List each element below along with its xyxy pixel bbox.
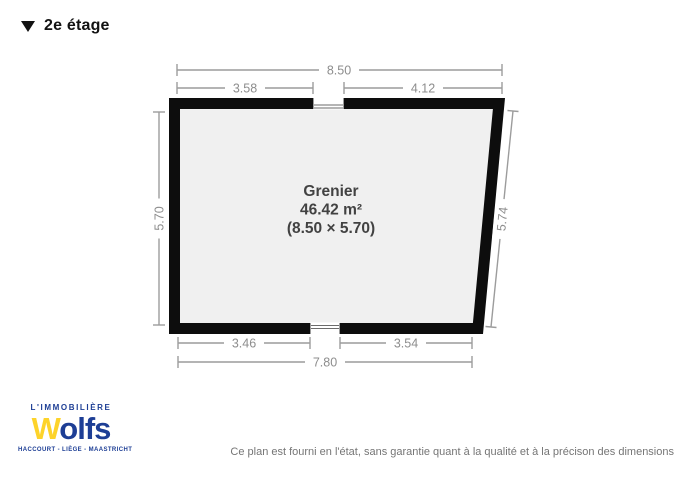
floorplan-drawing: 8.50 3.58 4.12 5.70 5.74 (0, 0, 679, 400)
agency-logo-initial: W (32, 411, 60, 446)
dimension-width-total: 8.50 (177, 62, 502, 78)
agency-logo: L'IMMOBILIÈRE Wolfs HACCOURT - LIÈGE - M… (18, 404, 124, 453)
dimension-value: 7.80 (313, 356, 337, 370)
agency-logo-cities: HACCOURT - LIÈGE - MAASTRICHT (18, 447, 124, 453)
dimension-value: 3.54 (394, 337, 418, 351)
disclaimer-text: Ce plan est fourni en l'état, sans garan… (230, 446, 674, 458)
dimension-bottom-left: 3.46 (178, 335, 310, 351)
agency-logo-brand: Wolfs (18, 413, 124, 444)
agency-logo-rest: olfs (59, 411, 110, 446)
dimension-width-right: 4.12 (344, 80, 502, 96)
window-bottom (310, 323, 340, 335)
dimension-value: 4.12 (411, 82, 435, 96)
room-area: 46.42 m² (300, 202, 362, 219)
dimension-tick (508, 111, 519, 112)
room-dimensions: (8.50 × 5.70) (287, 220, 375, 237)
dimension-value: 3.46 (232, 337, 256, 351)
dimension-tick (486, 327, 497, 328)
dimension-value: 8.50 (327, 64, 351, 78)
dimension-width-left: 3.58 (177, 80, 313, 96)
dimension-bottom-total: 7.80 (178, 354, 472, 370)
dimension-bottom-right: 3.54 (340, 335, 472, 351)
dimension-value: 5.70 (153, 206, 167, 230)
dimension-value: 3.58 (233, 82, 257, 96)
dimension-value: 5.74 (494, 206, 510, 232)
room-name: Grenier (303, 183, 358, 200)
window-top (313, 98, 344, 110)
dimension-height-left: 5.70 (151, 112, 167, 325)
